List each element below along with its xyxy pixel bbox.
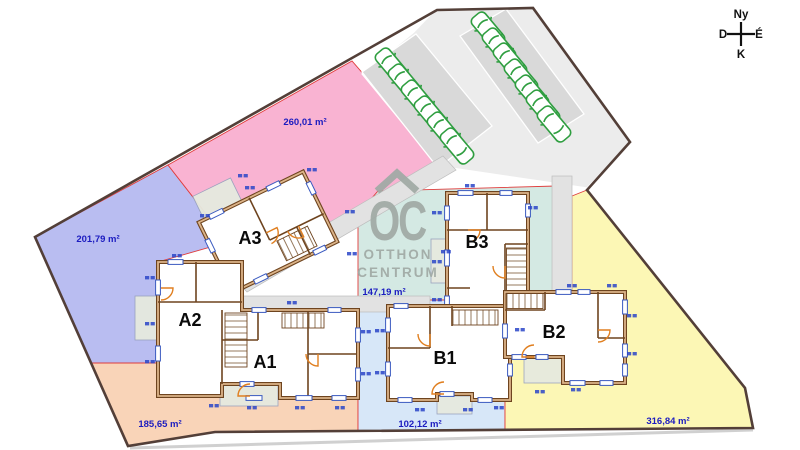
plot-label-pink: 260,01 m² xyxy=(283,117,326,128)
site-plan-canvas: OC OTTHON CENTRUM 260,01 m² 201,79 m² 18… xyxy=(0,0,800,450)
compass-rose: Ny D É K xyxy=(719,9,763,61)
porch-a2 xyxy=(135,296,159,340)
plot-label-orange: 185,65 m² xyxy=(138,419,181,430)
plot-label-blue: 201,79 m² xyxy=(76,234,119,245)
logo-line-1: OTTHON xyxy=(364,247,433,262)
unit-label-a1: A1 xyxy=(253,352,276,372)
unit-label-a2: A2 xyxy=(178,310,201,330)
logo-line-2: CENTRUM xyxy=(357,265,439,280)
porch-a1 xyxy=(220,384,278,406)
compass-label-top: Ny xyxy=(734,9,749,21)
compass-label-bottom: K xyxy=(737,49,746,61)
logo-monogram: OC xyxy=(369,191,426,253)
plot-label-teal: 147,19 m² xyxy=(362,287,405,298)
porch-b2 xyxy=(524,358,562,383)
plot-label-lightblue: 102,12 m² xyxy=(398,419,441,430)
unit-label-b2: B2 xyxy=(542,322,565,342)
compass-label-left: D xyxy=(719,29,727,41)
compass-label-right: É xyxy=(755,28,763,41)
plot-label-yellow: 316,84 m² xyxy=(646,416,689,427)
unit-label-b3: B3 xyxy=(465,232,488,252)
unit-label-b1: B1 xyxy=(433,348,456,368)
unit-label-a3: A3 xyxy=(238,228,261,248)
